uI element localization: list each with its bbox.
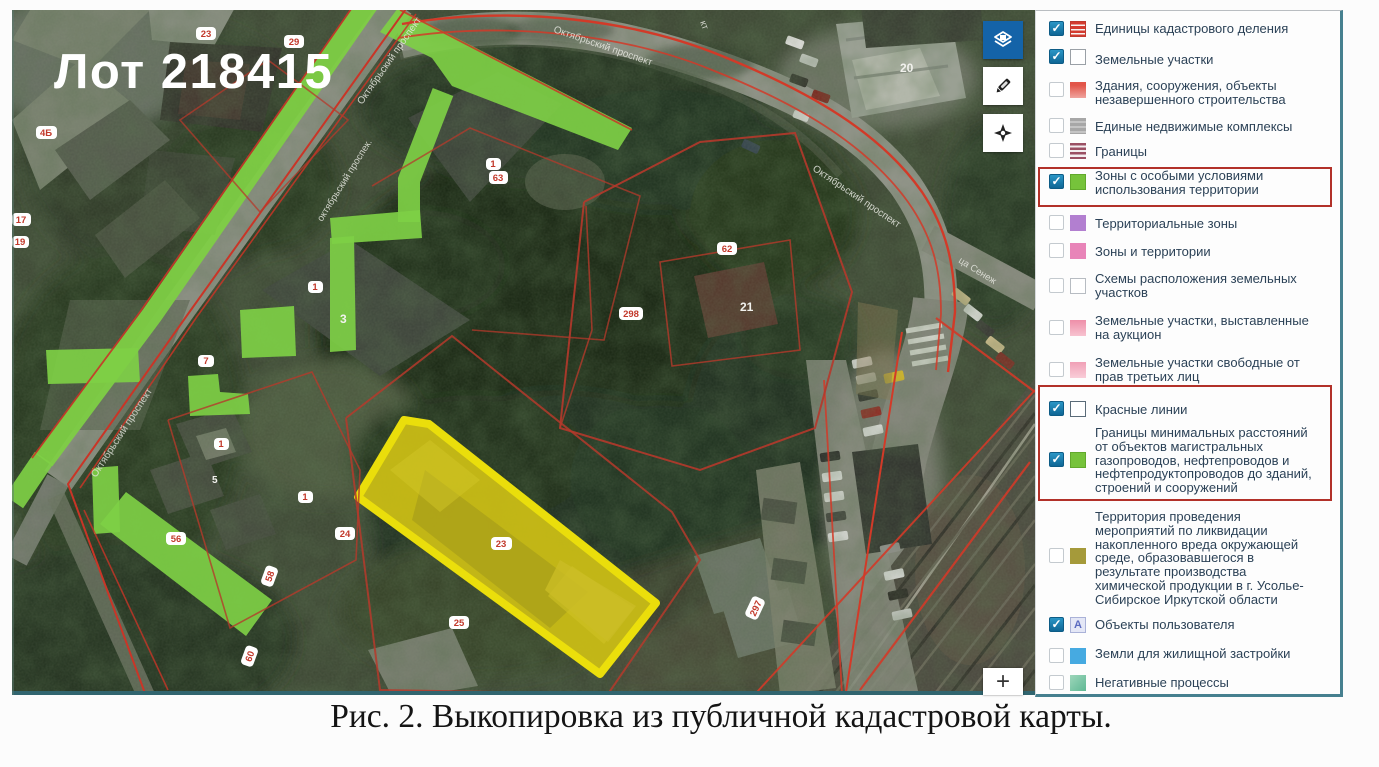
svg-text:298: 298 — [623, 309, 639, 320]
svg-text:24: 24 — [340, 529, 351, 540]
svg-text:17: 17 — [16, 215, 27, 226]
svg-text:56: 56 — [171, 534, 182, 545]
svg-text:62: 62 — [722, 244, 733, 255]
svg-text:20: 20 — [900, 61, 914, 75]
svg-text:7: 7 — [203, 356, 208, 367]
svg-text:63: 63 — [493, 173, 504, 184]
svg-text:1: 1 — [312, 282, 318, 293]
svg-text:19: 19 — [15, 237, 26, 248]
svg-text:1: 1 — [490, 159, 496, 170]
svg-text:3: 3 — [340, 312, 347, 326]
svg-text:Лот 218415: Лот 218415 — [54, 45, 333, 99]
svg-text:23: 23 — [201, 29, 212, 40]
svg-text:1: 1 — [218, 439, 224, 450]
svg-text:21: 21 — [740, 300, 754, 314]
svg-text:4Б: 4Б — [40, 128, 52, 139]
svg-text:5: 5 — [212, 475, 218, 486]
svg-text:1: 1 — [302, 492, 308, 503]
svg-text:25: 25 — [454, 618, 465, 629]
svg-text:23: 23 — [496, 539, 507, 550]
